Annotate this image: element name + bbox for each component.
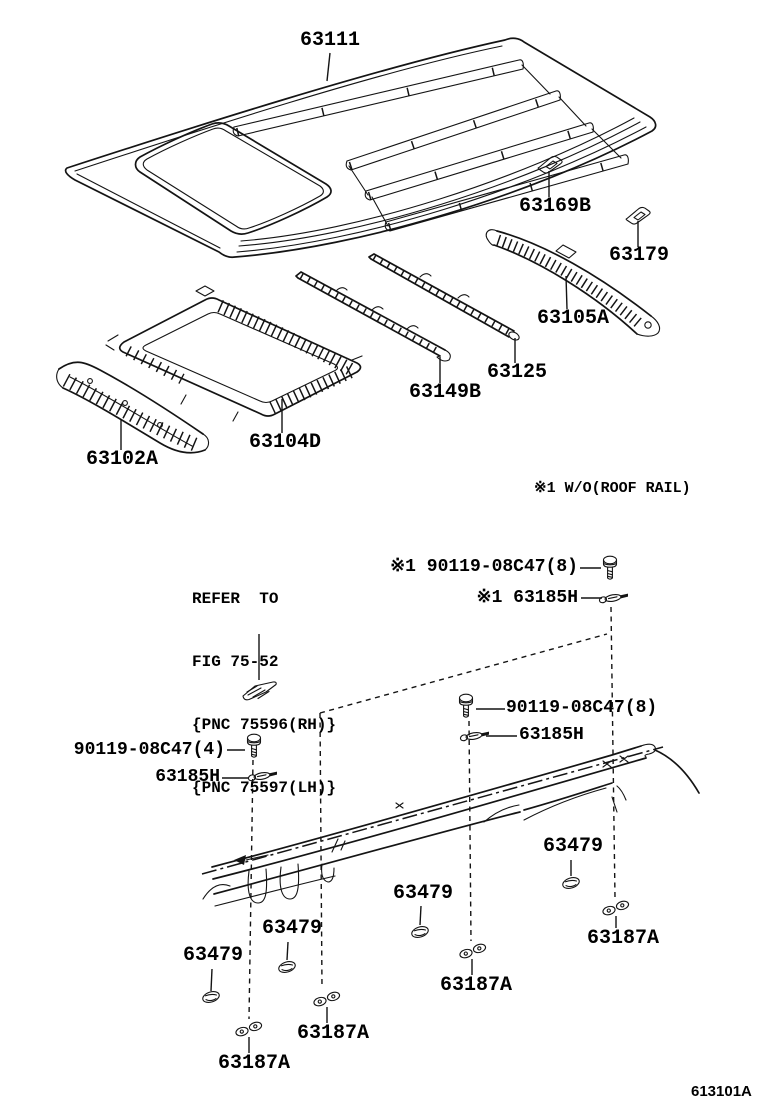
callout-clip-left[interactable]: 63185H bbox=[155, 768, 220, 787]
roof-front-brace-drawing bbox=[296, 272, 450, 361]
callout-63169b[interactable]: 63169B bbox=[519, 197, 591, 216]
callout-63187a[interactable]: 63187A bbox=[587, 929, 659, 948]
callout-bolt-mid[interactable]: 90119-08C47(8) bbox=[506, 699, 657, 718]
retainer-icon bbox=[459, 943, 487, 959]
callout-63479[interactable]: 63479 bbox=[543, 837, 603, 856]
callout-63149b[interactable]: 63149B bbox=[409, 383, 481, 402]
callout-clip-mid[interactable]: 63185H bbox=[519, 726, 584, 745]
callout-bolt-left[interactable]: 90119-08C47(4) bbox=[74, 741, 225, 760]
figure-code: 613101A bbox=[691, 1083, 752, 1100]
clip-icon bbox=[599, 593, 628, 603]
parts-diagram-page: 63111 63169B 63179 63105A 63125 63149B 6… bbox=[0, 0, 760, 1112]
retainer-icon bbox=[602, 900, 630, 916]
refer-note-line-2: FIG 75-52 bbox=[192, 652, 336, 673]
callout-63111[interactable]: 63111 bbox=[300, 31, 360, 50]
bolt-icon bbox=[460, 694, 473, 717]
leader-lines-top bbox=[121, 53, 638, 450]
clip-icon bbox=[460, 731, 489, 741]
callout-63102a[interactable]: 63102A bbox=[86, 450, 158, 469]
callout-bolt-top[interactable]: ※1 90119-08C47(8) bbox=[390, 558, 578, 577]
callout-clip-top[interactable]: ※1 63185H bbox=[477, 589, 579, 608]
callout-63125[interactable]: 63125 bbox=[487, 363, 547, 382]
callout-63104d[interactable]: 63104D bbox=[249, 433, 321, 452]
callout-63187a[interactable]: 63187A bbox=[297, 1024, 369, 1043]
callout-63187a[interactable]: 63187A bbox=[218, 1054, 290, 1073]
callout-63105a[interactable]: 63105A bbox=[537, 309, 609, 328]
retainer-icon bbox=[313, 991, 341, 1007]
roof-front-reinforcement-drawing bbox=[57, 362, 209, 453]
grommet-icon bbox=[561, 876, 580, 891]
callout-63479[interactable]: 63479 bbox=[393, 884, 453, 903]
refer-note-line-1: REFER TO bbox=[192, 589, 336, 610]
retainer-icon bbox=[235, 1021, 263, 1037]
callout-63187a[interactable]: 63187A bbox=[440, 976, 512, 995]
roof-panel-drawing bbox=[66, 38, 656, 257]
refer-note-line-3: {PNC 75596(RH)} bbox=[192, 715, 336, 736]
note-wo-roof-rail: ※1 W/O(ROOF RAIL) bbox=[534, 480, 691, 497]
sliding-roof-housing-drawing bbox=[106, 286, 362, 421]
grommet-icon bbox=[410, 925, 429, 940]
callout-63479[interactable]: 63479 bbox=[262, 919, 322, 938]
grommet-icon bbox=[277, 960, 296, 975]
callout-63479[interactable]: 63479 bbox=[183, 946, 243, 965]
bolt-icon bbox=[604, 556, 617, 579]
callout-63179[interactable]: 63179 bbox=[609, 246, 669, 265]
grommet-icon bbox=[201, 990, 220, 1005]
